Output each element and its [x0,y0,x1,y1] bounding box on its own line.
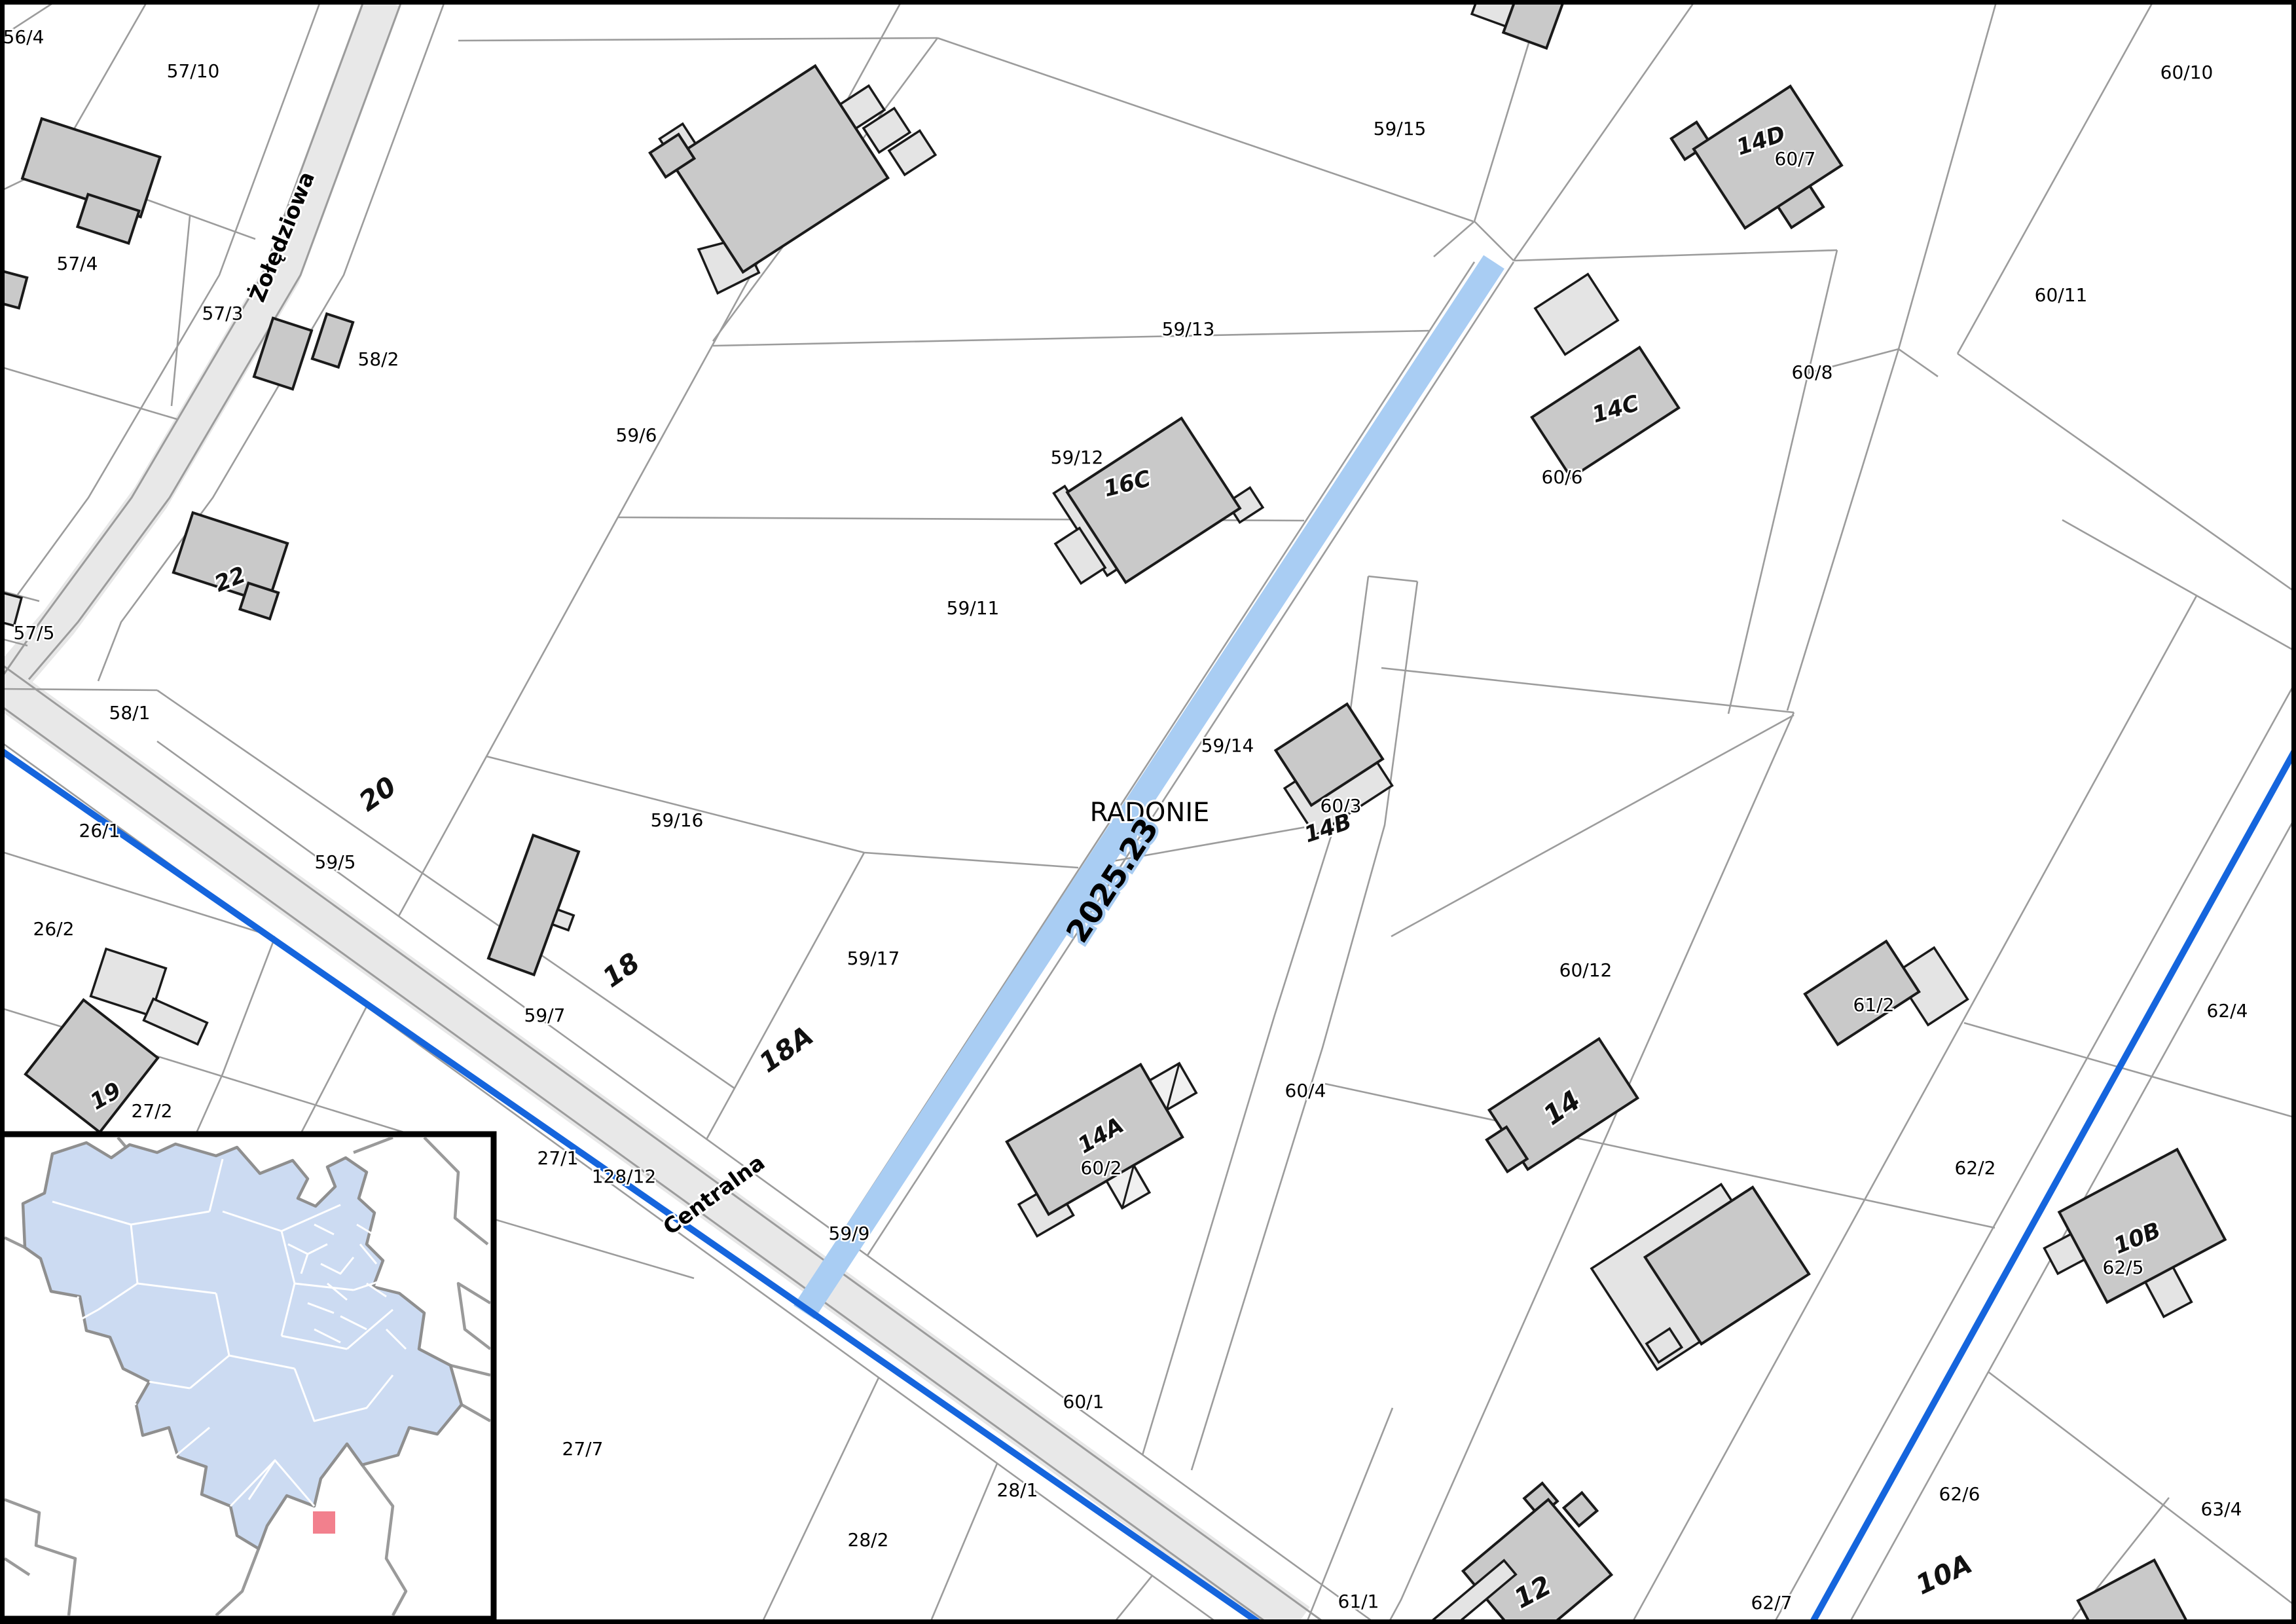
parcel-label: 62/2 [1955,1157,1996,1179]
parcel-label: 61/2 [1853,994,1895,1016]
parcel-label: 60/1 [1063,1391,1104,1412]
parcel-label: 62/4 [2207,1000,2248,1022]
parcel-label: 60/6 [1542,466,1583,488]
building-corner [2078,1560,2188,1624]
parcel-label: 27/1 [538,1147,579,1169]
parcel-label: 62/7 [1751,1592,1793,1614]
map-viewport[interactable]: 56/4 57/10 57/4 57/3 58/2 59/6 59/13 59/… [0,0,2296,1624]
building-14D [1671,69,1855,256]
parcel-label: 57/3 [202,303,244,324]
parcel-label: 128/12 [592,1166,657,1187]
parcel-label: 59/12 [1051,447,1104,468]
building [13,119,160,244]
parcel-label: 58/2 [358,348,399,370]
parcel-label: 63/4 [2201,1498,2242,1520]
parcel-label: 60/4 [1285,1080,1326,1101]
address-label: 10A [1911,1548,1977,1601]
parcel-label: 28/1 [997,1479,1038,1501]
parcel-label: 59/9 [829,1223,870,1244]
parcel-label: 59/11 [947,597,1000,619]
parcel-label: 59/16 [651,809,704,831]
parcel-label: 57/4 [57,253,98,274]
building-annex [144,999,208,1044]
parcel-label: 59/14 [1201,735,1254,756]
parcel-label: 59/13 [1162,318,1215,340]
parcel-label: 59/5 [315,851,356,873]
address-label: 18A [754,1020,819,1079]
parcel-label: 28/2 [848,1529,889,1551]
parcel-label: 60/7 [1775,148,1816,170]
map-canvas[interactable]: 56/4 57/10 57/4 57/3 58/2 59/6 59/13 59/… [0,0,2296,1624]
building-annex [1535,274,1618,355]
parcel-label: 62/6 [1939,1483,1980,1505]
building [312,314,353,367]
parcel-label: 56/4 [3,26,45,48]
parcel-label: 62/5 [2103,1257,2144,1278]
building-16C [1032,402,1263,613]
building-14A [989,1048,1228,1252]
parcel-label: 26/2 [33,918,75,940]
overview-inset-map [1,1134,494,1619]
parcel-label: 59/7 [524,1005,566,1026]
parcel-label: 60/2 [1081,1157,1122,1179]
building-18 [488,835,594,980]
parcel-label: 59/6 [616,424,657,446]
parcel-label: 27/2 [132,1100,173,1122]
parcel-label: 58/1 [109,702,151,724]
parcel-label: 26/1 [79,820,120,841]
parcel-label: 61/1 [1338,1591,1379,1612]
building-complex [630,18,937,298]
parcel-label: 59/15 [1374,118,1427,139]
parcel-label: 57/5 [14,622,55,644]
parcel-label: 59/17 [847,948,900,969]
building-top-edge [1470,0,1563,48]
parcel-label: 60/8 [1792,361,1833,383]
parcel-label: 60/11 [2035,284,2088,306]
address-label: 20 [354,770,402,817]
parcel-label: 57/10 [167,60,220,82]
address-label: 18 [597,946,646,993]
inset-location-marker [313,1511,335,1534]
building-unlabeled [1592,1171,1809,1372]
blue-line-east [1812,748,2296,1624]
parcel-label: 60/12 [1559,959,1613,981]
parcel-label: 60/10 [2160,62,2214,83]
parcel-label: 27/7 [562,1438,604,1460]
